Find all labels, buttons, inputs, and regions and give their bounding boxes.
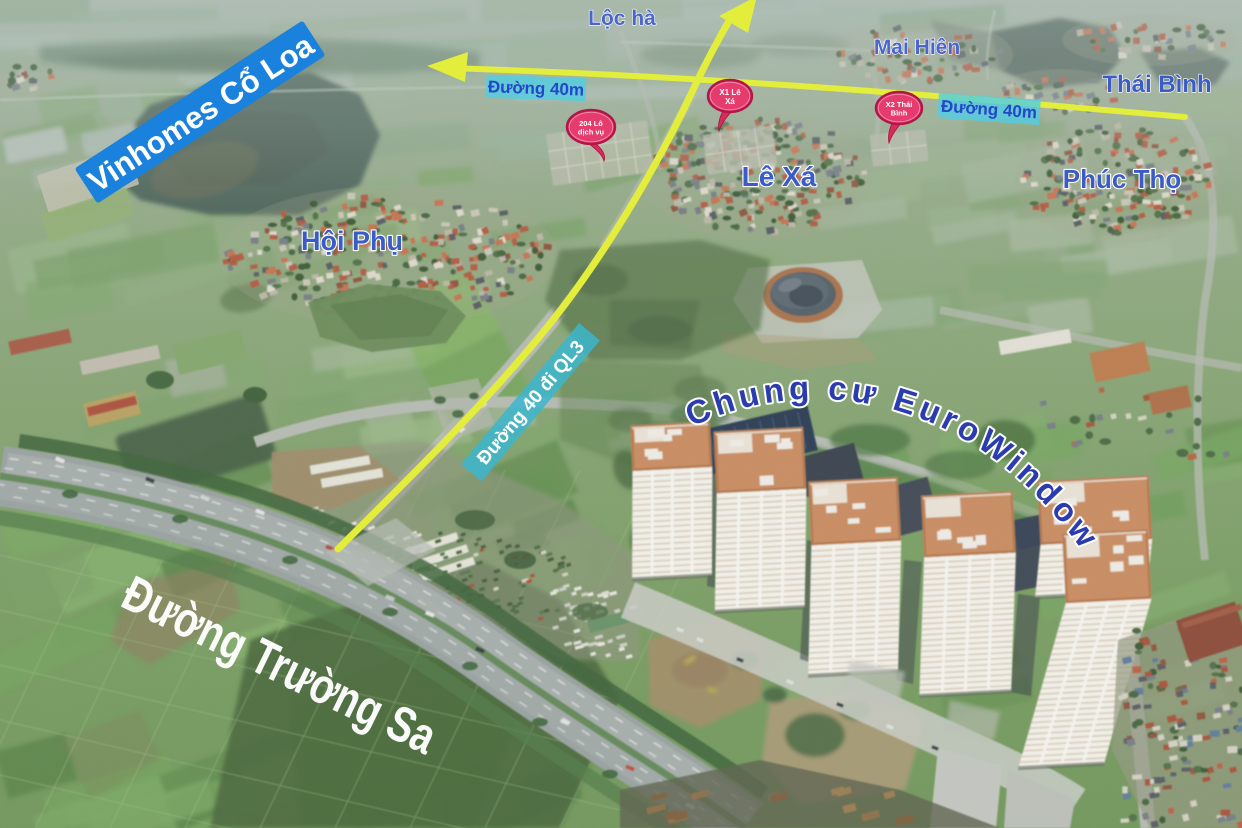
svg-text:Thái Bình: Thái Bình [1102, 71, 1211, 98]
svg-text:X1 Lê: X1 Lê [719, 88, 741, 97]
svg-text:Lộc hà: Lộc hà [588, 7, 656, 30]
svg-text:Mai Hiên: Mai Hiên [874, 36, 960, 59]
svg-text:Đường 40m: Đường 40m [488, 77, 585, 99]
svg-text:Phúc Thọ: Phúc Thọ [1063, 164, 1181, 194]
svg-text:dịch vụ: dịch vụ [578, 128, 605, 137]
svg-text:Bình: Bình [891, 109, 908, 118]
svg-text:Xá: Xá [725, 97, 735, 106]
svg-text:Hội Phụ: Hội Phụ [301, 226, 403, 256]
svg-text:Lê Xá: Lê Xá [742, 161, 817, 192]
